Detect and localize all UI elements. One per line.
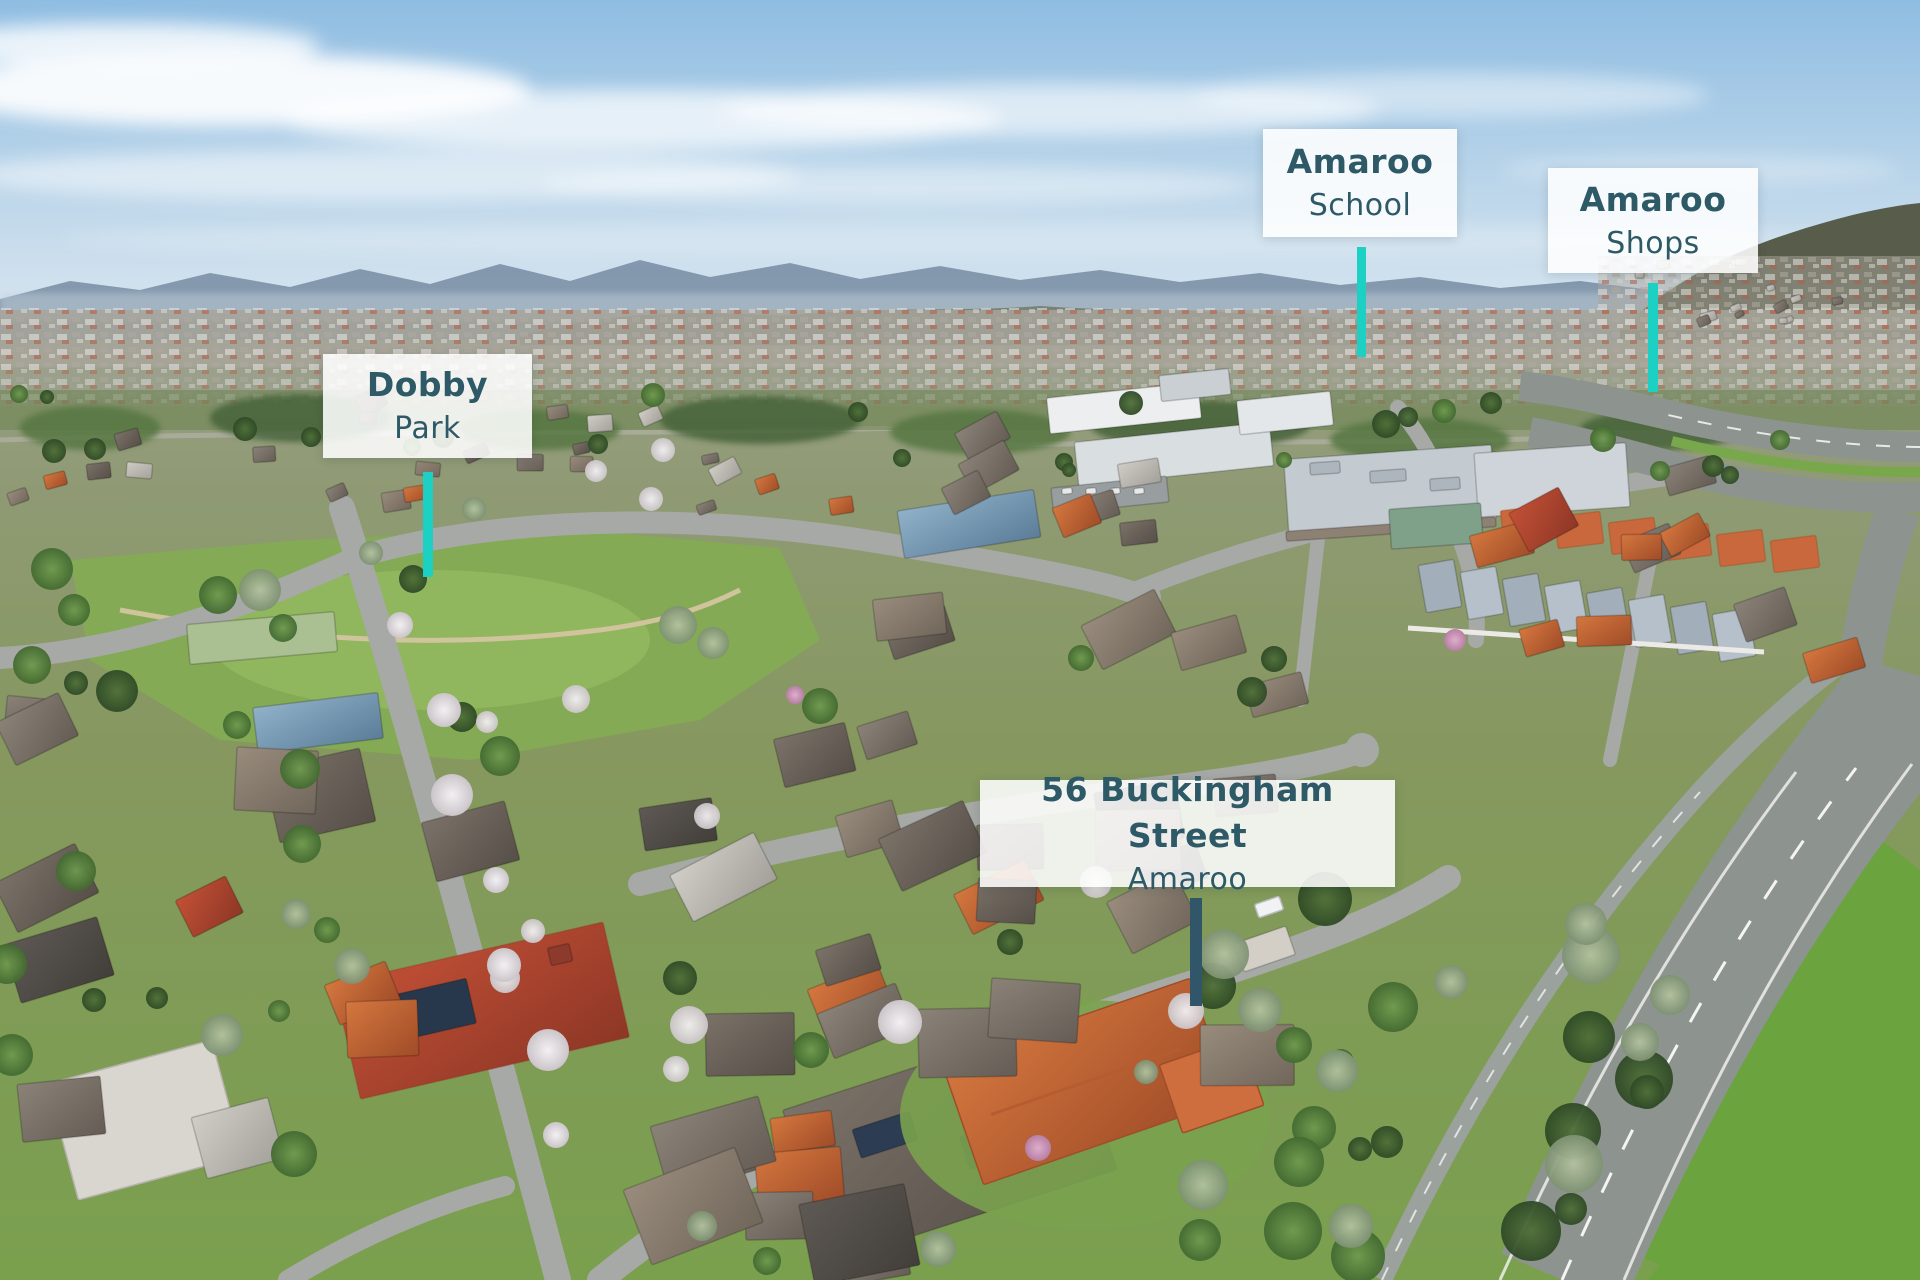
callout-box: Amaroo School xyxy=(1263,129,1457,237)
callout-title: Amaroo xyxy=(1287,139,1434,185)
callout-title: 56 Buckingham Street xyxy=(980,767,1395,859)
callout-title: Dobby xyxy=(367,362,488,408)
pointer-line xyxy=(1190,898,1202,1006)
callout-title: Amaroo xyxy=(1580,177,1727,223)
callout-box: 56 Buckingham Street Amaroo xyxy=(980,780,1395,887)
callout-subtitle: School xyxy=(1309,185,1412,227)
callout-property-address: 56 Buckingham Street Amaroo xyxy=(980,780,1395,887)
callout-box: Amaroo Shops xyxy=(1548,168,1758,273)
aerial-view-stage: Dobby Park Amaroo School Amaroo Shops 56… xyxy=(0,0,1920,1280)
callout-amaroo-school: Amaroo School xyxy=(1263,129,1457,237)
pointer-line xyxy=(1648,283,1658,392)
pointer-line xyxy=(423,472,433,577)
callout-subtitle: Amaroo xyxy=(1128,859,1248,901)
callout-dobby-park: Dobby Park xyxy=(323,354,532,458)
callout-subtitle: Park xyxy=(394,408,461,450)
pointer-line xyxy=(1357,247,1366,357)
callout-box: Dobby Park xyxy=(323,354,532,458)
callout-amaroo-shops: Amaroo Shops xyxy=(1548,168,1758,273)
callout-subtitle: Shops xyxy=(1606,223,1700,265)
